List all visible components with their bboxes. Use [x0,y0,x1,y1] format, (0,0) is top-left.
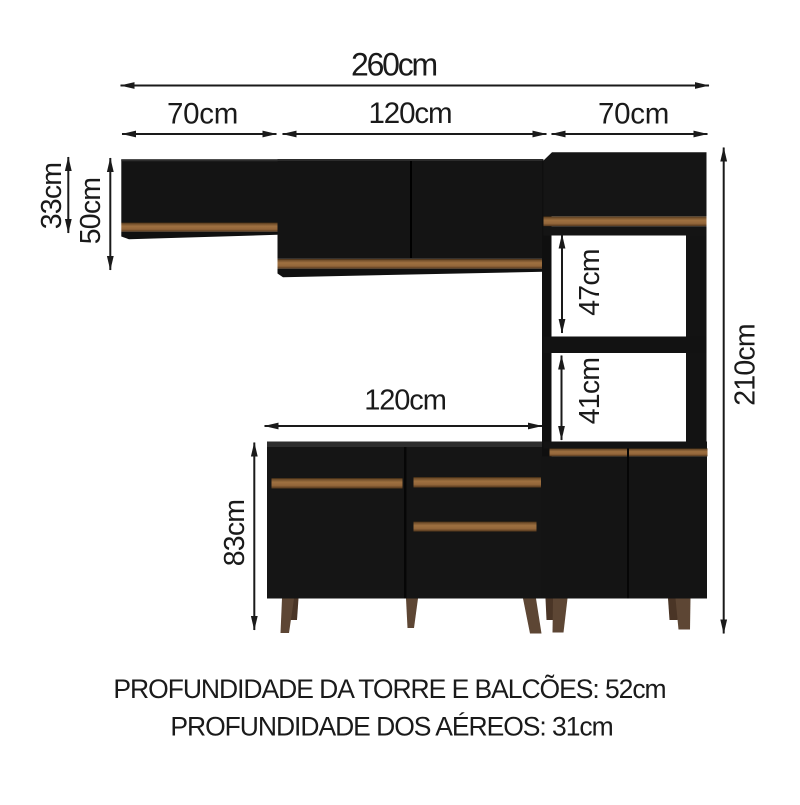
svg-text:120cm: 120cm [364,385,446,417]
svg-text:83cm: 83cm [219,500,251,567]
svg-text:PROFUNDIDADE DOS AÉREOS: 31cm: PROFUNDIDADE DOS AÉREOS: 31cm [170,712,612,742]
svg-text:260cm: 260cm [351,47,437,83]
svg-text:70cm: 70cm [598,98,669,131]
svg-text:210cm: 210cm [730,324,762,406]
svg-text:47cm: 47cm [574,249,606,316]
svg-text:50cm: 50cm [75,178,107,245]
svg-text:33cm: 33cm [36,163,68,230]
svg-text:70cm: 70cm [167,98,238,131]
svg-text:PROFUNDIDADE DA TORRE E BALCÕE: PROFUNDIDADE DA TORRE E BALCÕES: 52cm [113,674,665,704]
svg-text:120cm: 120cm [368,97,451,130]
svg-text:41cm: 41cm [574,358,606,425]
